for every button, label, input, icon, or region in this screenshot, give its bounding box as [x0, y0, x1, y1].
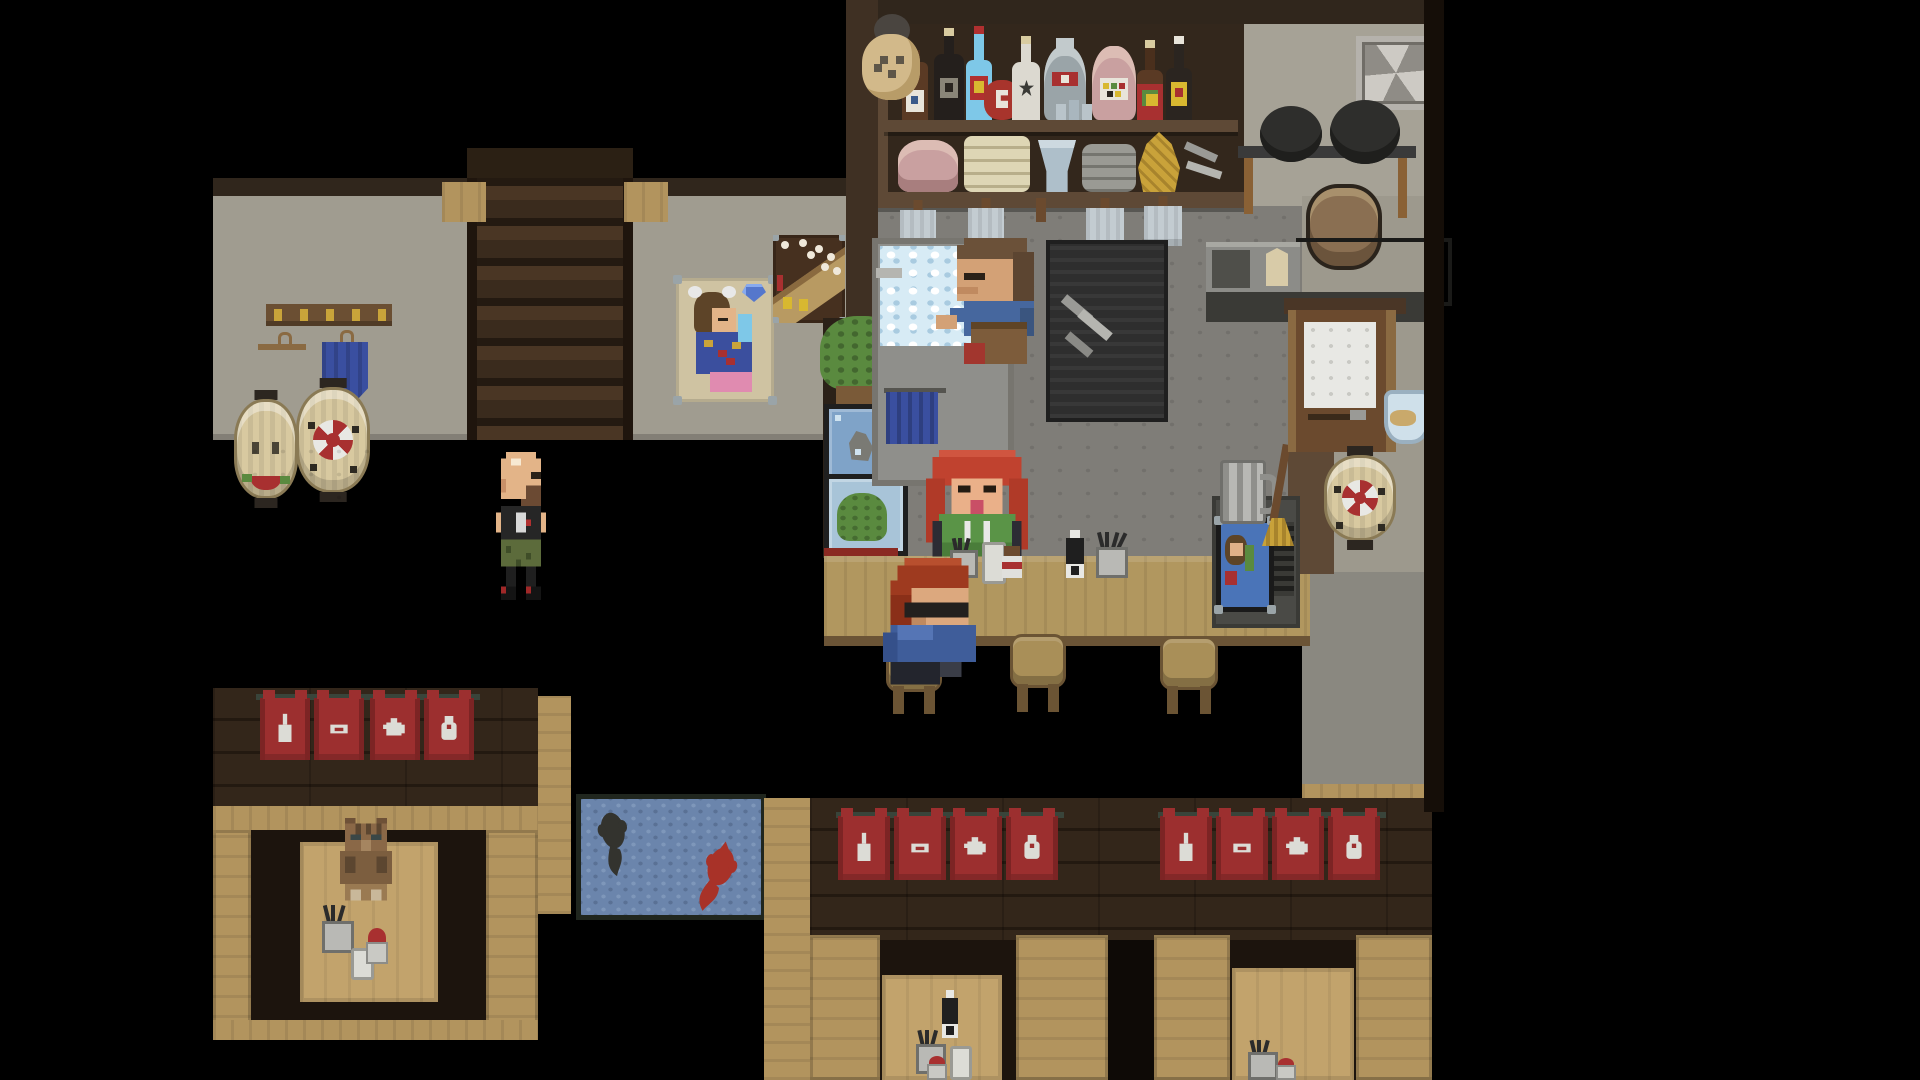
bottle-cap [974, 26, 984, 34]
stool-seat [1160, 636, 1218, 690]
noren-banner-plate [1216, 816, 1268, 880]
seal-center [1061, 75, 1069, 83]
terrarium [824, 474, 908, 556]
black-pan [1330, 100, 1400, 164]
bottle-cap [946, 990, 955, 998]
fishbowl-contents [1390, 410, 1416, 426]
hanger-hook [340, 330, 354, 343]
wave-band [773, 238, 845, 323]
staircase[interactable] [467, 178, 633, 440]
cup [322, 921, 354, 953]
jug-mark [996, 90, 1008, 108]
red-koi [692, 838, 743, 915]
soy-sauce-bottle [1064, 530, 1086, 578]
poster-gem [742, 284, 766, 302]
cup [1056, 104, 1066, 120]
tank-rock [849, 431, 873, 461]
bar-stool[interactable] [1010, 634, 1066, 712]
poster-blue-glass [738, 314, 752, 342]
chopstick-cup [1248, 1040, 1278, 1080]
condiment-jar [1002, 546, 1022, 578]
poster-pin [839, 235, 845, 241]
bottle-cap [944, 28, 954, 36]
broom [1258, 444, 1298, 548]
shelf-board-upper [884, 120, 1238, 132]
wave-red-mark [777, 275, 783, 291]
yellow-label-bottle [1166, 36, 1192, 120]
gourd-body [862, 34, 920, 100]
bottle-label [1171, 82, 1187, 106]
frame-clip [1214, 605, 1223, 614]
label-pixels [1103, 83, 1109, 89]
noren-banner-cup [424, 698, 474, 760]
hanging-towel [1144, 196, 1182, 246]
bottle-neck [1174, 44, 1184, 68]
cup [1248, 1052, 1278, 1080]
noren-banner-bottle [260, 698, 310, 760]
jar-base [1276, 1065, 1296, 1080]
koi-fish-art [581, 799, 761, 915]
stool-leg [1200, 686, 1211, 714]
ladle [1184, 141, 1218, 162]
map-right-border [1424, 0, 1444, 812]
bottle-neck [974, 34, 984, 60]
hanger-bar [258, 344, 306, 350]
noren-banner-plate [314, 698, 364, 760]
wave-glyphs [783, 297, 792, 309]
stool-leg [1048, 684, 1059, 712]
dish-rack [1046, 240, 1168, 422]
gourd-lantern [862, 14, 920, 104]
poster-pin [773, 235, 779, 241]
chopstick-cup [322, 905, 354, 953]
bald-patron-character[interactable] [486, 452, 556, 600]
coat-rack [266, 304, 392, 326]
picture-bottle [1245, 545, 1254, 571]
metal-counter [1206, 242, 1300, 294]
stair-brace-left [442, 182, 486, 222]
stool-seat [1010, 634, 1066, 688]
red-wrapped-bottle [1137, 40, 1163, 120]
flask-lid [1056, 38, 1074, 48]
poster-pin [773, 317, 779, 323]
bottle-cap [1145, 40, 1155, 48]
sake-cups-trio [1056, 100, 1096, 120]
door-window [1304, 322, 1376, 408]
lantern-dashes [308, 422, 315, 429]
door-lantern [1324, 446, 1396, 550]
empty-hanger [258, 332, 306, 354]
stool-leg [1017, 684, 1028, 712]
red-condiment-jar [366, 928, 388, 964]
drying-dish [1077, 309, 1113, 341]
noren-banner-plate [894, 816, 946, 880]
cream-plate-stack [964, 136, 1030, 192]
cat-character[interactable] [340, 818, 392, 906]
bartender-character[interactable] [936, 238, 1048, 378]
booth-bench[interactable] [1154, 935, 1230, 1080]
door-handle-bar [1308, 414, 1350, 420]
bottle-cap [1021, 36, 1031, 44]
terrarium-plant [837, 493, 887, 541]
koi-rug [576, 794, 766, 920]
cup [1096, 547, 1128, 578]
door-knob [1350, 410, 1366, 420]
wrap-label [1142, 90, 1158, 106]
bottle-window [946, 1026, 953, 1036]
frame-clip [1267, 605, 1276, 614]
cup [1082, 104, 1092, 120]
gray-plate-stack [1082, 144, 1136, 192]
poster-hair-flowers [688, 286, 702, 298]
sink-towel [886, 392, 938, 444]
booth-bench[interactable] [213, 830, 251, 1038]
bar-stool[interactable] [1160, 636, 1218, 714]
drying-dish [1065, 331, 1094, 357]
booth-divider [1108, 940, 1158, 1080]
white-cup [950, 1046, 972, 1080]
flask-seal [1052, 72, 1078, 86]
seated-customer-character[interactable] [876, 558, 990, 692]
black-koi [595, 810, 637, 878]
lantern-cap-bottom [1347, 540, 1373, 550]
counter-inset [1212, 250, 1250, 288]
poster-girl-skirt [710, 372, 752, 392]
bottle-label [940, 78, 958, 98]
booth-bench[interactable] [486, 830, 538, 1038]
jar-lid [1004, 546, 1020, 556]
white-sake-bottle [1012, 36, 1040, 120]
pinup-poster [676, 278, 774, 402]
stairs-upper-extension [467, 148, 633, 182]
noren-banner-cup [1006, 816, 1058, 880]
bottle-cap [1174, 36, 1184, 44]
wave-poster [773, 235, 845, 323]
red-wrap [1137, 84, 1163, 120]
noren-banner-cup [1328, 816, 1380, 880]
cup [1069, 100, 1079, 120]
bottle-body [1066, 538, 1085, 564]
milk-carton [1266, 248, 1288, 286]
coat-rack-hooks [274, 309, 282, 321]
bottle-neck [944, 36, 954, 56]
noren-banner-teapot [950, 816, 1002, 880]
chopstick-cup [1096, 532, 1128, 578]
red-condiment-jar [1276, 1058, 1296, 1080]
noren-banner-teapot [1272, 816, 1324, 880]
broom-bristles [1262, 518, 1294, 546]
right-floor [1302, 572, 1432, 786]
counter-red-stripe [824, 548, 898, 556]
poster-pin [673, 396, 682, 405]
back-door[interactable] [1288, 310, 1396, 452]
bottle-cap [1070, 530, 1080, 538]
pink-bowl-stack [898, 140, 958, 192]
poster-girl-eye [718, 318, 728, 321]
jar-label [1100, 78, 1128, 100]
picture-face [1230, 543, 1243, 556]
red-condiment-jar [927, 1056, 947, 1080]
jar-base [927, 1064, 947, 1080]
label-mark [1175, 88, 1183, 97]
bottle-body [942, 998, 959, 1024]
black-pan [1260, 106, 1322, 162]
lantern-dashes [1334, 486, 1341, 493]
game-screen [0, 0, 1920, 1080]
wave-foam [781, 241, 789, 249]
bottle-neck [1145, 48, 1155, 72]
noren-banner-bottle [1160, 816, 1212, 880]
bottle-neck [1021, 44, 1031, 64]
wall-peg [1036, 198, 1046, 222]
jar-band [1002, 562, 1022, 569]
pink-jar [1092, 46, 1136, 120]
tank-specks [835, 415, 841, 421]
faucet [876, 268, 902, 278]
booth-bench[interactable] [810, 935, 880, 1080]
poster-pin [768, 396, 777, 405]
lantern-flower [1342, 480, 1378, 516]
left-booth-bottom-edge [213, 1020, 538, 1040]
label-kanji [945, 83, 953, 92]
label-mark [974, 81, 984, 93]
ladle [1186, 161, 1223, 180]
picture-red [1225, 571, 1237, 585]
poster-shirt-marks [704, 340, 713, 347]
broom-stick [1269, 444, 1290, 522]
poster-pin [673, 275, 682, 284]
gourd-face [880, 56, 888, 64]
jar-base [366, 942, 388, 964]
booth-bench[interactable] [1016, 935, 1108, 1080]
stool-leg [1167, 686, 1178, 714]
black-sake-bottle [934, 28, 964, 120]
bottle-window [1071, 566, 1079, 576]
noren-banner-bottle [838, 816, 890, 880]
booth-outer-wall [764, 798, 814, 1080]
noren-banner-teapot [370, 698, 420, 760]
booth-bench[interactable] [1356, 935, 1432, 1080]
stair-brace-right [624, 182, 668, 222]
